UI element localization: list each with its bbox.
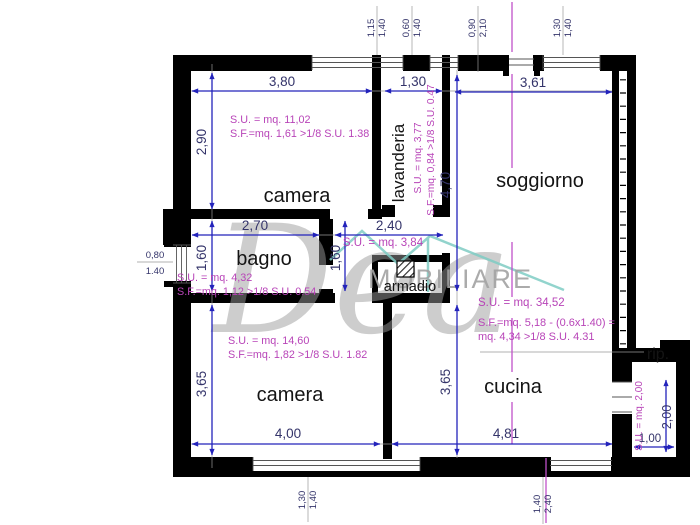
opening-top-3-height: 2,10	[478, 19, 489, 38]
opening-top-2-height: 1,40	[412, 19, 423, 38]
cucina-sf-line2: mq. 4,34 >1/8 S.U. 4.31	[478, 331, 595, 343]
disimpegno-su: S.U. = mq. 3,84	[343, 237, 424, 249]
opening-top-1-width: 1,15	[366, 19, 377, 38]
dim-lavanderia-width: 1,30	[400, 74, 426, 89]
opening-top-4-width: 1,30	[552, 19, 563, 38]
dim-camera1-width: 3,80	[269, 74, 295, 89]
room-label-bagno: bagno	[236, 248, 292, 270]
opening-top-2-width: 0,60	[401, 19, 412, 38]
room-label-cucina: cucina	[484, 376, 543, 398]
wardrobe-symbol-icon	[397, 261, 414, 277]
dim-hall-width: 2,40	[376, 218, 402, 233]
dim-camera2-width: 4,00	[275, 426, 301, 441]
opening-bottom-1-height: 1,40	[308, 491, 319, 510]
camera1-su: S.U. = mq. 11,02	[230, 114, 311, 126]
dim-soggiorno-height: 4,70	[438, 172, 453, 198]
room-label-camera-2: camera	[257, 384, 325, 406]
cucina-su: S.U. = mq. 34,52	[478, 297, 565, 309]
room-label-camera-1: camera	[264, 185, 332, 207]
opening-bottom-2-height: 2,40	[543, 495, 554, 514]
floor-plan-svg: Dea MOBILIARE	[0, 0, 700, 525]
rip-su: S.U. = mq. 2,00	[634, 381, 645, 451]
cucina-sf-line1: S.F.=mq. 5,18 - (0.6x1.40) =	[478, 317, 615, 329]
camera1-sf: S.F.=mq. 1,61 >1/8 S.U. 1.38	[230, 128, 369, 140]
room-label-lavanderia: lavanderia	[389, 123, 408, 202]
dim-cucina-height: 3,65	[438, 369, 453, 395]
camera2-sf: S.F.=mq. 1,82 >1/8 S.U. 1.82	[228, 349, 367, 361]
bagno-sf: S.F.=mq. 1,12 >1/8 S.U. 0.54	[177, 286, 316, 298]
lavanderia-sf: S.F.=mq. 0,84 >1/8 S.U. 0.47	[426, 84, 437, 216]
lavanderia-su: S.U. = mq. 3,77	[413, 122, 424, 193]
opening-bottom-1-width: 1,30	[297, 491, 308, 510]
opening-bottom-2-width: 1,40	[532, 495, 543, 514]
dim-soggiorno-width: 3,61	[520, 75, 546, 90]
dim-bagno-height: 1,60	[194, 245, 209, 271]
dim-camera1-height: 2,90	[194, 129, 209, 155]
floor-plan: Dea MOBILIARE	[0, 0, 700, 525]
opening-left-width: 0,80	[146, 250, 165, 261]
room-label-rip: rip.	[647, 346, 669, 363]
dim-hall-height: 1,60	[328, 245, 343, 271]
opening-top-3-width: 0,90	[467, 19, 478, 38]
opening-top-1-height: 1,40	[377, 19, 388, 38]
opening-left-height: 1.40	[146, 266, 165, 277]
opening-top-4-height: 1,40	[563, 19, 574, 38]
room-label-soggiorno: soggiorno	[496, 170, 584, 192]
camera2-su: S.U. = mq. 14,60	[228, 335, 309, 347]
dim-cucina-width: 4,81	[493, 426, 519, 441]
bagno-su: S.U. = mq. 4,32	[177, 272, 252, 284]
dim-bagno-width: 2,70	[242, 218, 268, 233]
dim-camera2-height: 3,65	[194, 371, 209, 397]
room-label-armadio: armadio	[384, 279, 436, 295]
dim-rip-height: 2,00	[660, 405, 674, 429]
